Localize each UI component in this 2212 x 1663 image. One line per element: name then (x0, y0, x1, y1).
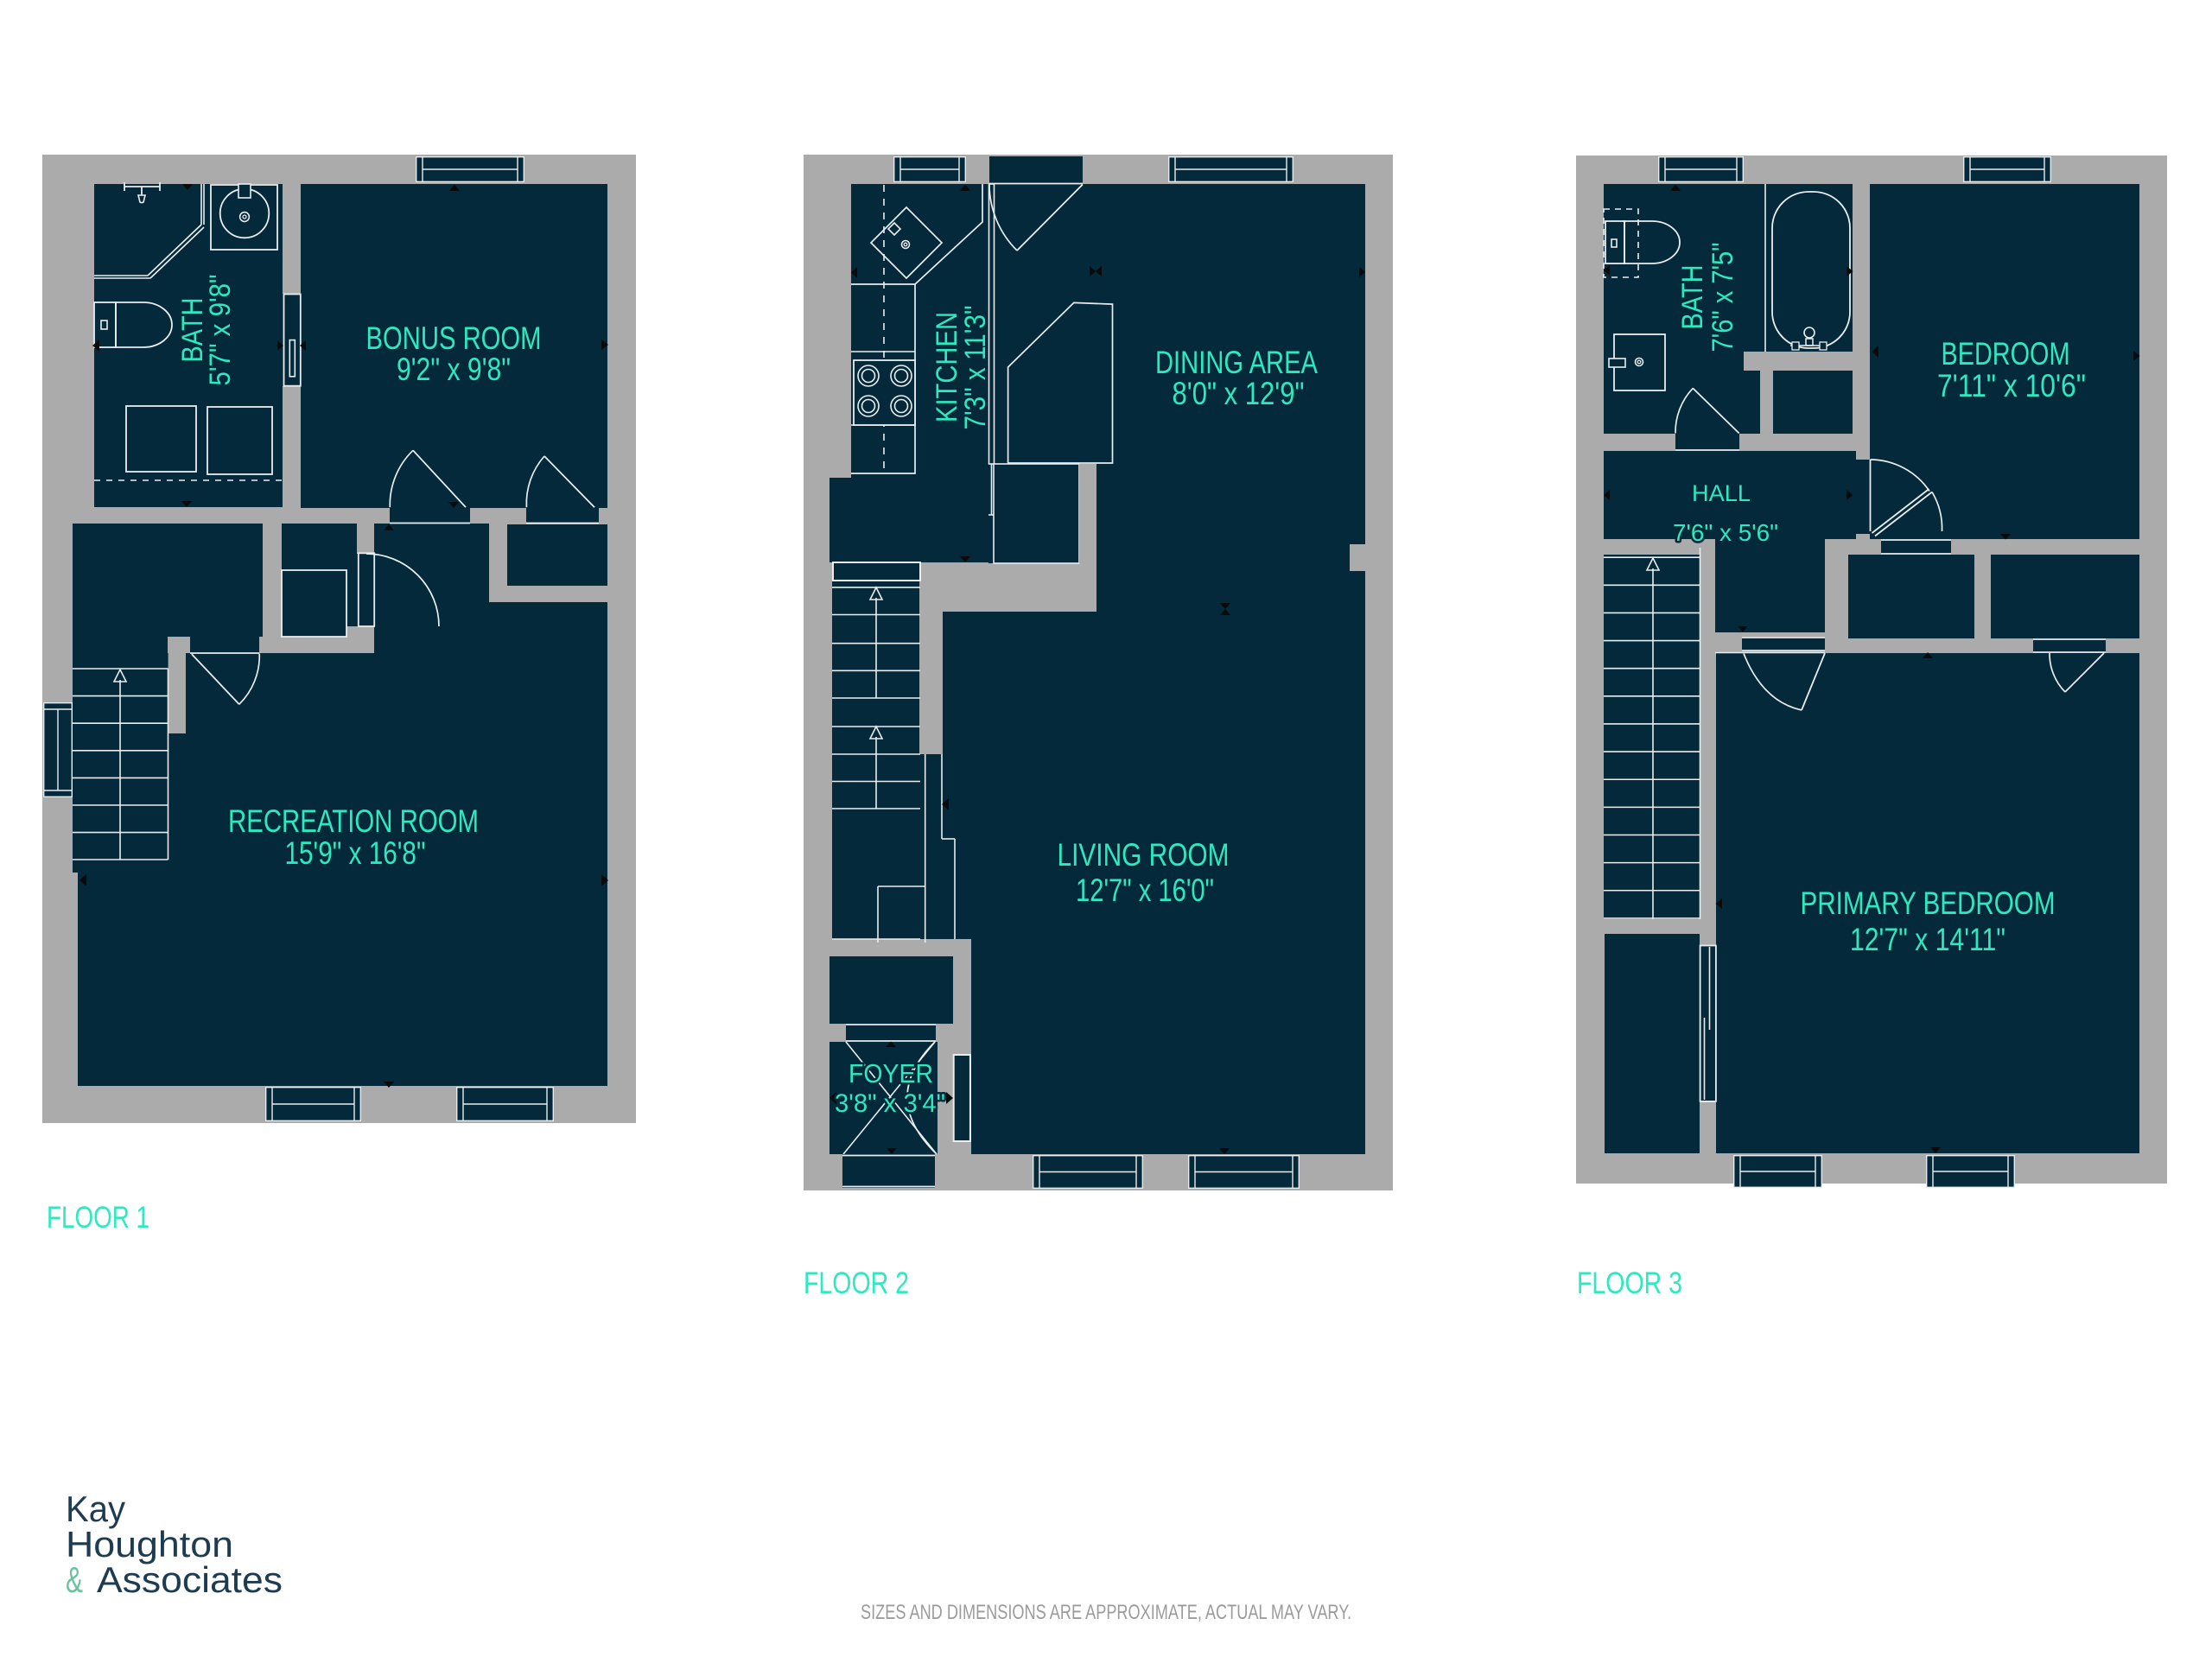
svg-text:HALL: HALL (1692, 480, 1751, 506)
svg-text:7'6" x 7'5": 7'6" x 7'5" (1707, 243, 1739, 352)
svg-text:7'11" x 10'6": 7'11" x 10'6" (1937, 368, 2086, 403)
svg-text:LIVING ROOM: LIVING ROOM (1058, 837, 1230, 873)
svg-text:&: & (66, 1559, 83, 1600)
svg-text:BONUS ROOM: BONUS ROOM (366, 321, 542, 356)
svg-text:7'3" x 11'3": 7'3" x 11'3" (959, 306, 992, 430)
svg-text:8'0" x 12'9": 8'0" x 12'9" (1173, 376, 1305, 411)
svg-text:Associates: Associates (97, 1559, 283, 1600)
svg-text:3'8" x 3'4": 3'8" x 3'4" (835, 1089, 945, 1118)
svg-text:15'9" x 16'8": 15'9" x 16'8" (285, 835, 426, 871)
svg-text:RECREATION ROOM: RECREATION ROOM (228, 803, 479, 839)
svg-text:7'6" x 5'6": 7'6" x 5'6" (1673, 519, 1778, 546)
svg-text:FLOOR 1: FLOOR 1 (47, 1201, 149, 1235)
svg-text:9'2" x 9'8": 9'2" x 9'8" (397, 352, 511, 387)
svg-text:PRIMARY BEDROOM: PRIMARY BEDROOM (1801, 885, 2056, 921)
svg-text:DINING AREA: DINING AREA (1155, 345, 1318, 380)
svg-text:FLOOR 2: FLOOR 2 (804, 1266, 909, 1300)
svg-text:FLOOR 3: FLOOR 3 (1577, 1266, 1682, 1300)
svg-text:Kay: Kay (66, 1488, 125, 1529)
svg-text:Houghton: Houghton (66, 1524, 233, 1565)
svg-text:BATH: BATH (1676, 265, 1709, 330)
svg-text:SIZES AND DIMENSIONS ARE APPRO: SIZES AND DIMENSIONS ARE APPROXIMATE, AC… (861, 1601, 1351, 1624)
svg-text:FOYER: FOYER (849, 1058, 933, 1089)
svg-text:5'7" x 9'8": 5'7" x 9'8" (204, 275, 237, 386)
svg-text:12'7" x 16'0": 12'7" x 16'0" (1076, 873, 1214, 908)
svg-text:12'7" x 14'11": 12'7" x 14'11" (1850, 922, 2005, 957)
svg-text:BEDROOM: BEDROOM (1942, 336, 2070, 371)
